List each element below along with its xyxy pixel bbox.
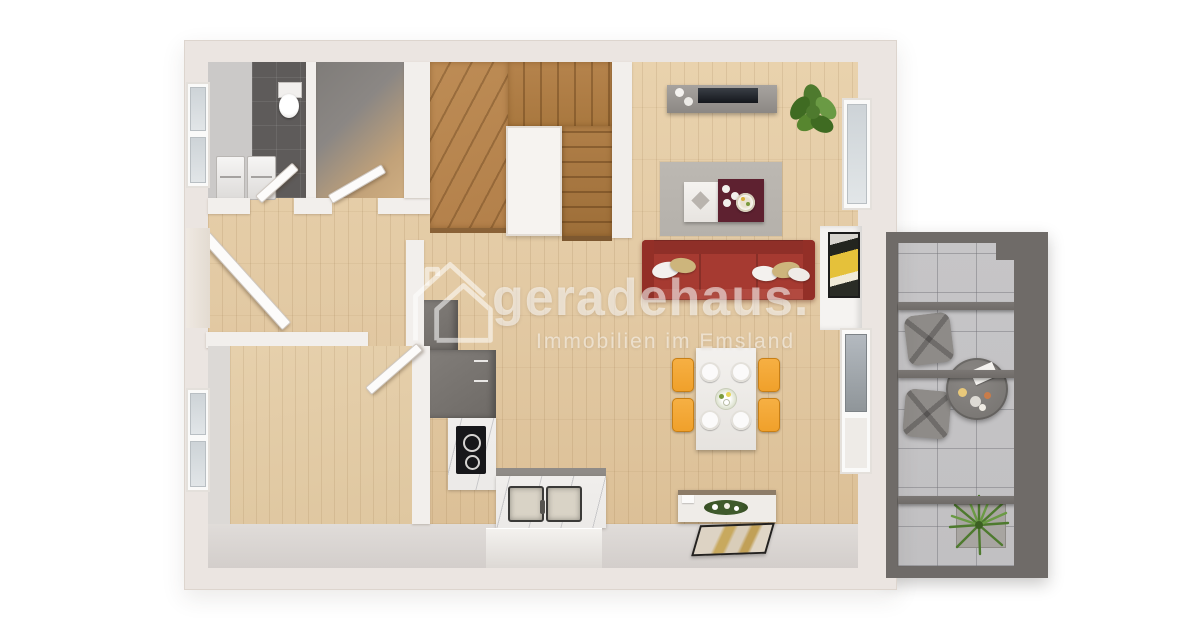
terrace <box>886 232 1048 578</box>
flower-dot <box>724 400 729 405</box>
wall-segment <box>208 198 250 214</box>
bowl <box>675 88 684 97</box>
tv-lowboard <box>667 85 777 113</box>
bowl <box>684 97 693 106</box>
plate <box>722 185 730 193</box>
watermark-tagline: Immobilien im Emsland <box>536 331 795 352</box>
stairwell-core <box>506 126 562 236</box>
dining-table <box>696 348 756 450</box>
window-glass <box>190 137 206 183</box>
window-glass <box>190 393 206 435</box>
floorplan-render: geradehaus. Immobilien im Emsland <box>0 0 1200 618</box>
living-window <box>842 98 872 210</box>
window-glass <box>190 441 206 487</box>
kitchen-tall-unit <box>430 350 496 418</box>
house-outline-icon <box>404 250 500 350</box>
watermark-brand: geradehaus. <box>492 272 809 324</box>
place-setting <box>700 410 720 430</box>
wall-room-right <box>412 346 430 524</box>
faucet <box>540 500 545 514</box>
table-centerpiece <box>715 388 737 410</box>
coffee-table-maroon <box>718 179 764 222</box>
flower-dot <box>719 394 724 399</box>
window-glass <box>190 87 206 131</box>
unit-handle <box>474 380 488 382</box>
washing-machine <box>216 156 245 200</box>
sideboard <box>678 490 776 522</box>
dining-chair <box>672 398 694 432</box>
flower-dot <box>734 506 739 511</box>
toilet-bowl <box>279 94 299 118</box>
flower-dot <box>712 504 718 510</box>
wall-stairs-right <box>612 62 632 238</box>
sideboard-box <box>682 495 694 503</box>
room-window <box>186 388 210 492</box>
place-setting <box>731 410 751 430</box>
stair-flight-upper <box>562 126 612 241</box>
bathroom-window <box>186 82 210 188</box>
door-glass <box>845 334 867 412</box>
flower-dot <box>724 503 730 509</box>
cooktop <box>456 426 486 474</box>
dining-chair <box>758 358 780 392</box>
plate <box>723 199 731 207</box>
wall-bath-storage <box>306 62 316 198</box>
burner <box>463 434 481 452</box>
pergola-side-band <box>1014 232 1048 578</box>
unit-handle <box>474 360 488 362</box>
sink-basin <box>508 486 544 522</box>
dining-chair <box>672 358 694 392</box>
dining-chair <box>758 398 780 432</box>
flower-dot <box>746 202 750 206</box>
flower-tray <box>704 500 748 515</box>
window-glass <box>847 104 867 204</box>
stair-flight-lower <box>430 62 508 233</box>
burner <box>465 455 480 470</box>
wall-stairs-left <box>404 62 430 198</box>
terrace-glass-door <box>840 328 872 474</box>
flower-dot <box>741 197 745 201</box>
door-sill <box>845 418 867 468</box>
stair-flight-winder <box>508 62 612 126</box>
flower-bowl <box>736 193 755 212</box>
place-setting <box>700 362 720 382</box>
kitchen-base-cabinet <box>486 528 602 568</box>
kitchen-island <box>496 476 606 528</box>
room-left-wall-face <box>208 346 230 524</box>
flower-dot <box>726 392 731 397</box>
tv-screen <box>698 88 758 103</box>
wall-segment <box>294 198 332 214</box>
napkin-deco <box>691 191 709 209</box>
coffee-table-white <box>684 182 718 222</box>
sink-basin <box>546 486 582 522</box>
wall-artwork <box>828 232 860 298</box>
decor-mat <box>691 523 775 557</box>
wall-segment <box>378 198 430 214</box>
place-setting <box>731 362 751 382</box>
houseplant-icon <box>784 80 842 140</box>
entrance-threshold <box>186 228 210 328</box>
